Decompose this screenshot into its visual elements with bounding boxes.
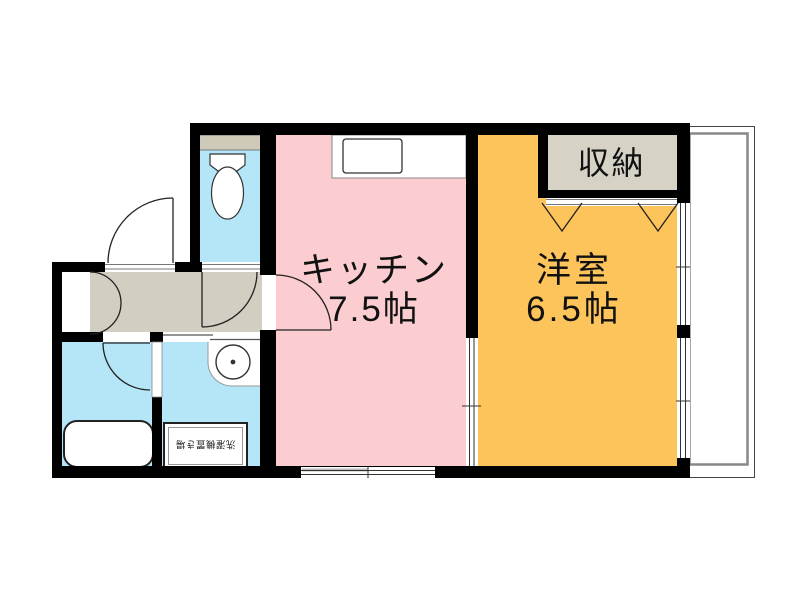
wall-center-upper [260, 123, 276, 275]
balcony [686, 127, 755, 478]
sliding-door-kitchen-western [466, 338, 478, 466]
kitchen-name: キッチン [283, 251, 465, 290]
western-room-label: 洋室 6.5帖 [478, 251, 670, 329]
bath-door-opening [103, 332, 150, 342]
wall-toilet-left [190, 123, 200, 272]
kitchen-label: キッチン 7.5帖 [283, 251, 465, 329]
closet-label: 収納 [546, 146, 677, 182]
entrance-step [62, 270, 90, 332]
window-right-upper [677, 203, 690, 325]
washer-pan-label: 洗濯機置き場 [167, 438, 244, 452]
washbasin-drain [231, 360, 236, 365]
closet-name: 収納 [546, 146, 677, 182]
kitchen-sink [343, 139, 402, 173]
toilet-door-opening [202, 262, 260, 272]
wall-right-mullion [677, 325, 690, 338]
wall-closet-bottom [538, 190, 677, 198]
kitchen-size: 7.5帖 [283, 290, 465, 329]
entrance-opening [105, 262, 175, 272]
bathtub-icon [64, 421, 153, 467]
bath-partition [152, 342, 162, 397]
western-room-size: 6.5帖 [478, 290, 670, 329]
washroom-slide-opening [163, 332, 260, 342]
toilet-shelf [198, 135, 262, 150]
balcony-outer-rail [686, 127, 755, 478]
balcony-inner-rail [690, 134, 748, 465]
floorplan: キッチン 7.5帖 洋室 6.5帖 収納 洗濯機置き場 [0, 0, 800, 600]
toilet-bowl-icon [212, 167, 244, 219]
wall-left [52, 262, 62, 478]
wall-bath-divider [152, 397, 162, 466]
entrance-door-arc [108, 198, 173, 263]
wall-right-upper [677, 123, 690, 203]
wall-right-lower [677, 458, 690, 478]
wall-kitchen-western [466, 123, 478, 338]
window-right-lower [677, 338, 690, 458]
wall-center-lower [260, 330, 276, 478]
kitchen-door-opening [262, 275, 276, 330]
western-room-name: 洋室 [478, 251, 670, 290]
hallway-floor [60, 266, 262, 338]
